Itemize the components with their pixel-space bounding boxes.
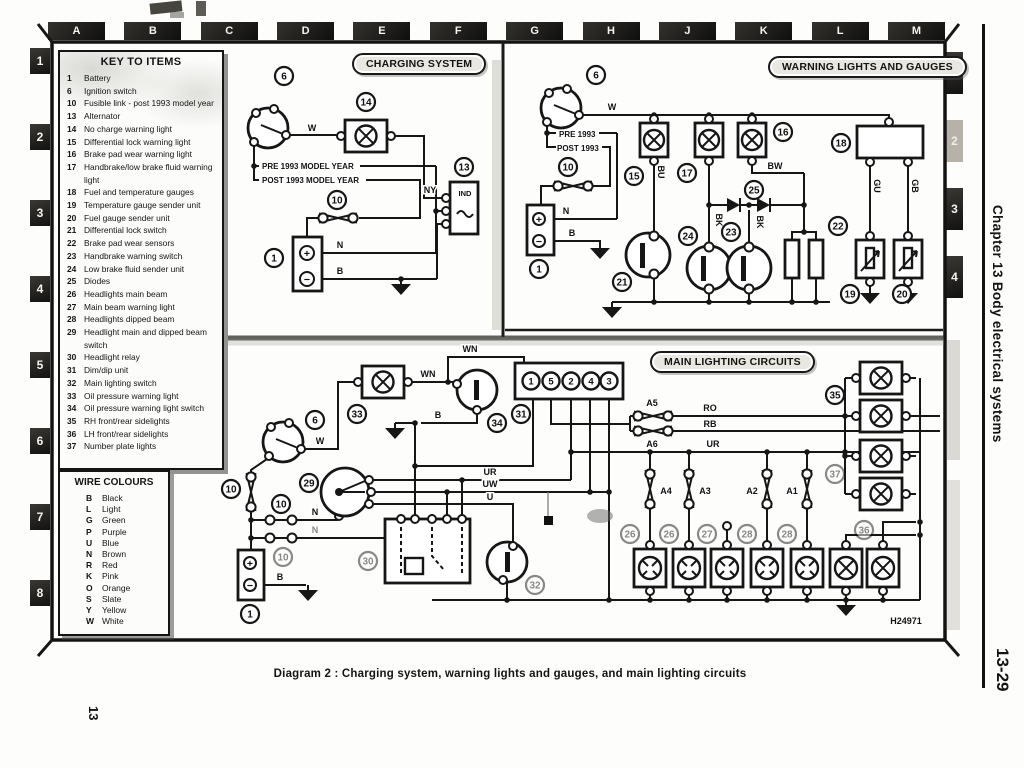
- svg-text:18: 18: [835, 139, 847, 150]
- handbrake-warning-light-symbol: [695, 115, 723, 165]
- wire-label-b2: B: [277, 572, 284, 582]
- ignition-switch-symbol: [263, 419, 305, 462]
- terminal-1: 1: [528, 377, 534, 388]
- fuse-label-a3: A3: [699, 486, 711, 496]
- callout-23: 23: [722, 223, 740, 241]
- wire-label-n: N: [312, 507, 319, 517]
- terminal-4: 4: [588, 377, 594, 388]
- terminal-3: 3: [606, 377, 611, 388]
- callout-33: 33: [348, 405, 366, 423]
- main-lighting-switch-symbol: [487, 542, 527, 584]
- key-item: 23Handbrake warning switch: [67, 250, 219, 263]
- callout-10: 10: [222, 480, 240, 498]
- fuse-a3-symbol: [684, 469, 693, 508]
- headlamp-symbol: [791, 541, 823, 595]
- wire-label-wn: WN: [421, 369, 436, 379]
- svg-text:19: 19: [844, 290, 856, 301]
- callout-6: 6: [587, 66, 605, 84]
- number-plate-light-symbol: [852, 478, 910, 510]
- callout-32: 32: [526, 576, 544, 594]
- wire-label-ur: UR: [484, 467, 497, 477]
- manual-page: ABCDEFGHJKLM 12345678 1234: [0, 0, 1024, 768]
- wire-label-gu: GU: [872, 179, 882, 193]
- key-item: 32Main lighting switch: [67, 377, 219, 390]
- wire-colour-entry: WWhite: [86, 616, 168, 627]
- svg-text:6: 6: [312, 416, 318, 427]
- callout-6: 6: [306, 411, 324, 429]
- wire-colour-entry: GGreen: [86, 515, 168, 526]
- wire-colour-entry: PPurple: [86, 527, 168, 538]
- post-1993-label: POST 1993 MODEL YEAR: [262, 176, 359, 185]
- scan-artifact: [947, 340, 960, 460]
- svg-text:1: 1: [536, 265, 542, 276]
- callout-1: 1: [530, 260, 548, 278]
- callout-35: 35: [826, 386, 844, 404]
- diff-lock-warning-light-symbol: [640, 115, 668, 165]
- scan-artifact: [587, 509, 613, 523]
- key-item: 37Number plate lights: [67, 440, 219, 453]
- battery-minus: −: [536, 236, 542, 248]
- svg-text:30: 30: [362, 557, 374, 568]
- wire-colour-entry: NBrown: [86, 549, 168, 560]
- svg-text:26: 26: [624, 530, 636, 541]
- wire-colours-title: WIRE COLOURS: [60, 472, 168, 491]
- key-item: 20Fuel gauge sender unit: [67, 212, 219, 225]
- wire-colour-entry: OOrange: [86, 583, 168, 594]
- svg-text:10: 10: [331, 196, 343, 207]
- wire-label-b: B: [569, 228, 576, 238]
- fusible-link-symbol: [246, 472, 255, 511]
- key-item: 22Brake pad wear sensors: [67, 237, 219, 250]
- callout-24: 24: [679, 227, 697, 245]
- charging-section-schematic: + − IND W NY N B PRE 1993 MODEL YEAR POS…: [248, 67, 478, 295]
- lighting-section-schematic: + − 1 5 2 4 3: [222, 344, 940, 623]
- battery-plus: +: [247, 558, 253, 570]
- svg-text:32: 32: [529, 581, 541, 592]
- key-item: 34Oil pressure warning light switch: [67, 402, 219, 415]
- wire-colour-entry: LLight: [86, 504, 168, 515]
- key-item: 21Differential lock switch: [67, 224, 219, 237]
- drawing-reference: H24971: [890, 616, 922, 626]
- fuse-a2-symbol: [762, 469, 771, 508]
- callout-1: 1: [265, 249, 283, 267]
- svg-text:27: 27: [701, 530, 713, 541]
- callout-26b: 26: [660, 525, 678, 543]
- rh-sidelight-symbol: [852, 400, 910, 432]
- battery-minus: −: [304, 274, 310, 286]
- oil-switch-symbol: [453, 370, 497, 414]
- svg-text:1: 1: [247, 610, 253, 621]
- wire-colours-list: BBlackLLightGGreenPPurpleUBlueNBrownRRed…: [60, 491, 168, 627]
- oil-warning-light-symbol: [354, 366, 412, 398]
- wire-label-u: U: [487, 492, 494, 502]
- fuse-label-a2: A2: [746, 486, 758, 496]
- scan-artifact: [947, 480, 960, 630]
- battery-symbol: + −: [238, 550, 264, 600]
- headlamp-symbol: [711, 541, 743, 595]
- callout-30: 30: [359, 552, 377, 570]
- wire-label-ur2: UR: [707, 439, 720, 449]
- svg-text:16: 16: [777, 128, 789, 139]
- callout-37: 37: [826, 465, 844, 483]
- key-item: 17Handbrake/low brake fluid warning ligh…: [67, 161, 219, 186]
- key-item: 10Fusible link - post 1993 model year: [67, 97, 219, 110]
- key-items-list: 1Battery6Ignition switch10Fusible link -…: [60, 70, 222, 453]
- callout-19: 19: [841, 285, 859, 303]
- fusible-link-symbol: [318, 213, 357, 222]
- dim-dip-unit-symbol: 1 5 2 4 3: [515, 363, 623, 399]
- svg-text:1: 1: [271, 254, 277, 265]
- gauges-symbol: [857, 118, 923, 166]
- wire-label-w: W: [308, 123, 317, 133]
- temp-sender-symbol: [856, 232, 884, 286]
- key-item: 18Fuel and temperature gauges: [67, 186, 219, 199]
- svg-text:28: 28: [741, 530, 753, 541]
- svg-text:17: 17: [681, 169, 693, 180]
- key-item: 31Dim/dip unit: [67, 364, 219, 377]
- pre-1993-label: PRE 1993: [559, 130, 596, 139]
- svg-text:34: 34: [491, 419, 503, 430]
- callout-26: 26: [621, 525, 639, 543]
- page-reference: 13-29: [992, 648, 1012, 691]
- svg-text:26: 26: [663, 530, 675, 541]
- svg-text:10: 10: [277, 553, 289, 564]
- key-item: 33Oil pressure warning light: [67, 390, 219, 403]
- wire-colour-entry: KPink: [86, 571, 168, 582]
- callout-25: 25: [745, 181, 763, 199]
- diff-lock-switch-symbol: [626, 232, 670, 279]
- wire-colours-box: WIRE COLOURS BBlackLLightGGreenPPurpleUB…: [58, 470, 170, 636]
- callout-13: 13: [455, 158, 473, 176]
- headlamp-symbol: [634, 541, 666, 595]
- callout-20: 20: [893, 285, 911, 303]
- svg-text:35: 35: [829, 391, 841, 402]
- wire-label-ny: NY: [424, 185, 437, 195]
- fuse-a5-symbol: [633, 411, 672, 420]
- wire-label-n: N: [563, 206, 570, 216]
- svg-text:14: 14: [360, 98, 372, 109]
- callout-28: 28: [738, 525, 756, 543]
- svg-text:29: 29: [303, 479, 315, 490]
- headlamp-symbol: [673, 541, 705, 595]
- wire-label-gb: GB: [910, 179, 920, 193]
- wire-colour-entry: BBlack: [86, 493, 168, 504]
- callout-14: 14: [357, 93, 375, 111]
- callout-31: 31: [512, 405, 530, 423]
- margin-rule: [982, 24, 985, 688]
- key-item: 35RH front/rear sidelights: [67, 415, 219, 428]
- sidelight-symbol: [830, 541, 862, 595]
- wire-label-wn2: WN: [463, 344, 478, 354]
- svg-text:33: 33: [351, 410, 363, 421]
- fuse-a6-symbol: [633, 426, 672, 435]
- fuse-a4-symbol: [645, 469, 654, 508]
- svg-text:6: 6: [281, 72, 287, 83]
- ignition-switch-symbol: [541, 85, 583, 128]
- callout-10: 10: [328, 191, 346, 209]
- wire-label-bu: BU: [656, 166, 666, 179]
- battery-symbol: + −: [293, 237, 322, 291]
- wire-label-n2: N: [312, 525, 319, 535]
- fuse-a1-symbol: [802, 469, 811, 508]
- key-item: 25Diodes: [67, 275, 219, 288]
- diagram-caption: Diagram 2 : Charging system, warning lig…: [140, 668, 880, 680]
- low-fluid-sender-symbol: [687, 243, 731, 294]
- alternator-symbol: IND: [442, 182, 478, 234]
- callout-34: 34: [488, 414, 506, 432]
- callout-15: 15: [625, 167, 643, 185]
- charging-system-title: CHARGING SYSTEM: [352, 53, 486, 75]
- wire-label-w: W: [316, 436, 325, 446]
- chapter-title-vertical: Chapter 13 Body electrical systems: [990, 205, 1005, 443]
- brake-pad-warning-light-symbol: [738, 115, 766, 165]
- key-item: 36LH front/rear sidelights: [67, 428, 219, 441]
- key-item: 26Headlights main beam: [67, 288, 219, 301]
- callout-10: 10: [559, 158, 577, 176]
- key-item: 27Main beam warning light: [67, 301, 219, 314]
- svg-text:21: 21: [616, 278, 628, 289]
- battery-plus: +: [536, 214, 542, 226]
- warning-lights-title: WARNING LIGHTS AND GAUGES: [768, 56, 967, 78]
- svg-text:28: 28: [781, 530, 793, 541]
- callout-16: 16: [774, 123, 792, 141]
- fuse-label-a6: A6: [646, 439, 658, 449]
- svg-text:31: 31: [515, 410, 527, 421]
- brake-pad-sensors-symbol: [785, 240, 823, 278]
- key-item: 14No charge warning light: [67, 123, 219, 136]
- callout-10b: 10: [272, 495, 290, 513]
- wire-label-n: N: [337, 240, 344, 250]
- battery-plus: +: [304, 248, 310, 260]
- fuse-label-a1: A1: [786, 486, 798, 496]
- callout-18: 18: [832, 134, 850, 152]
- headlamp-symbol: [751, 541, 783, 595]
- callout-27: 27: [698, 525, 716, 543]
- svg-text:36: 36: [858, 526, 870, 537]
- wire-colour-entry: SSlate: [86, 594, 168, 605]
- svg-text:15: 15: [628, 172, 640, 183]
- key-item: 24Low brake fluid sender unit: [67, 263, 219, 276]
- wire-colour-entry: YYellow: [86, 605, 168, 616]
- chapter-number: 13: [86, 706, 101, 720]
- svg-text:37: 37: [829, 470, 841, 481]
- callout-21: 21: [613, 273, 631, 291]
- svg-text:6: 6: [593, 71, 599, 82]
- svg-text:22: 22: [832, 222, 844, 233]
- fuse-label-a5: A5: [646, 398, 658, 408]
- svg-text:23: 23: [725, 228, 737, 239]
- callout-1: 1: [241, 605, 259, 623]
- svg-text:20: 20: [896, 290, 908, 301]
- svg-text:24: 24: [682, 232, 694, 243]
- ignition-switch-symbol: [248, 105, 290, 148]
- key-item: 30Headlight relay: [67, 351, 219, 364]
- battery-symbol: + −: [527, 205, 554, 255]
- terminal-5: 5: [548, 377, 554, 388]
- fuse-label-a4: A4: [660, 486, 672, 496]
- callout-29: 29: [300, 474, 318, 492]
- headlight-relay-symbol: [385, 515, 470, 583]
- callout-10c: 10: [274, 548, 292, 566]
- battery-minus: −: [247, 580, 253, 592]
- key-item: 16Brake pad wear warning light: [67, 148, 219, 161]
- key-item: 1Battery: [67, 72, 219, 85]
- sidelight-symbol: [867, 541, 899, 595]
- alternator-ind-label: IND: [459, 189, 473, 198]
- wire-colour-entry: UBlue: [86, 538, 168, 549]
- svg-text:10: 10: [562, 163, 574, 174]
- wire-label-b: B: [337, 266, 344, 276]
- wire-label-bk2: BK: [755, 216, 765, 229]
- key-item: 28Headlights dipped beam: [67, 313, 219, 326]
- warning-section-schematic: + −: [527, 66, 923, 318]
- wire-label-b: B: [435, 410, 442, 420]
- wire-label-bw: BW: [768, 161, 783, 171]
- fusible-link-symbol: [553, 181, 592, 190]
- wire-label-w: W: [608, 102, 617, 112]
- main-lighting-title: MAIN LIGHTING CIRCUITS: [650, 351, 815, 373]
- wire-label-uw: UW: [483, 479, 498, 489]
- wire-label-rb: RB: [704, 419, 717, 429]
- key-item: 29Headlight main and dipped beam switch: [67, 326, 219, 351]
- wire-colour-entry: RRed: [86, 560, 168, 571]
- terminal-2: 2: [568, 377, 573, 388]
- key-item: 15Differential lock warning light: [67, 136, 219, 149]
- handbrake-switch-symbol: [727, 243, 771, 294]
- svg-text:10: 10: [225, 485, 237, 496]
- wire-label-bk: BK: [714, 214, 724, 227]
- key-to-items-title: KEY TO ITEMS: [60, 52, 222, 70]
- key-item: 19Temperature gauge sender unit: [67, 199, 219, 212]
- fuel-sender-symbol: [894, 232, 922, 286]
- callout-36: 36: [855, 521, 873, 539]
- svg-text:25: 25: [748, 186, 760, 197]
- callout-28b: 28: [778, 525, 796, 543]
- svg-text:10: 10: [275, 500, 287, 511]
- pre-1993-label: PRE 1993 MODEL YEAR: [262, 162, 354, 171]
- callout-17: 17: [678, 164, 696, 182]
- callout-22: 22: [829, 217, 847, 235]
- no-charge-warning-light-symbol: [337, 120, 395, 152]
- callout-6: 6: [275, 67, 293, 85]
- beam-switch-symbol: [321, 468, 375, 516]
- svg-text:13: 13: [458, 163, 470, 174]
- key-to-items-box: KEY TO ITEMS 1Battery6Ignition switch10F…: [58, 50, 224, 470]
- scan-artifact: [492, 60, 502, 330]
- wire-label-ro: RO: [703, 403, 717, 413]
- key-item: 13Alternator: [67, 110, 219, 123]
- rh-sidelight-symbol: [852, 362, 910, 394]
- post-1993-label: POST 1993: [557, 144, 599, 153]
- number-plate-light-symbol: [852, 440, 910, 472]
- key-item: 6Ignition switch: [67, 85, 219, 98]
